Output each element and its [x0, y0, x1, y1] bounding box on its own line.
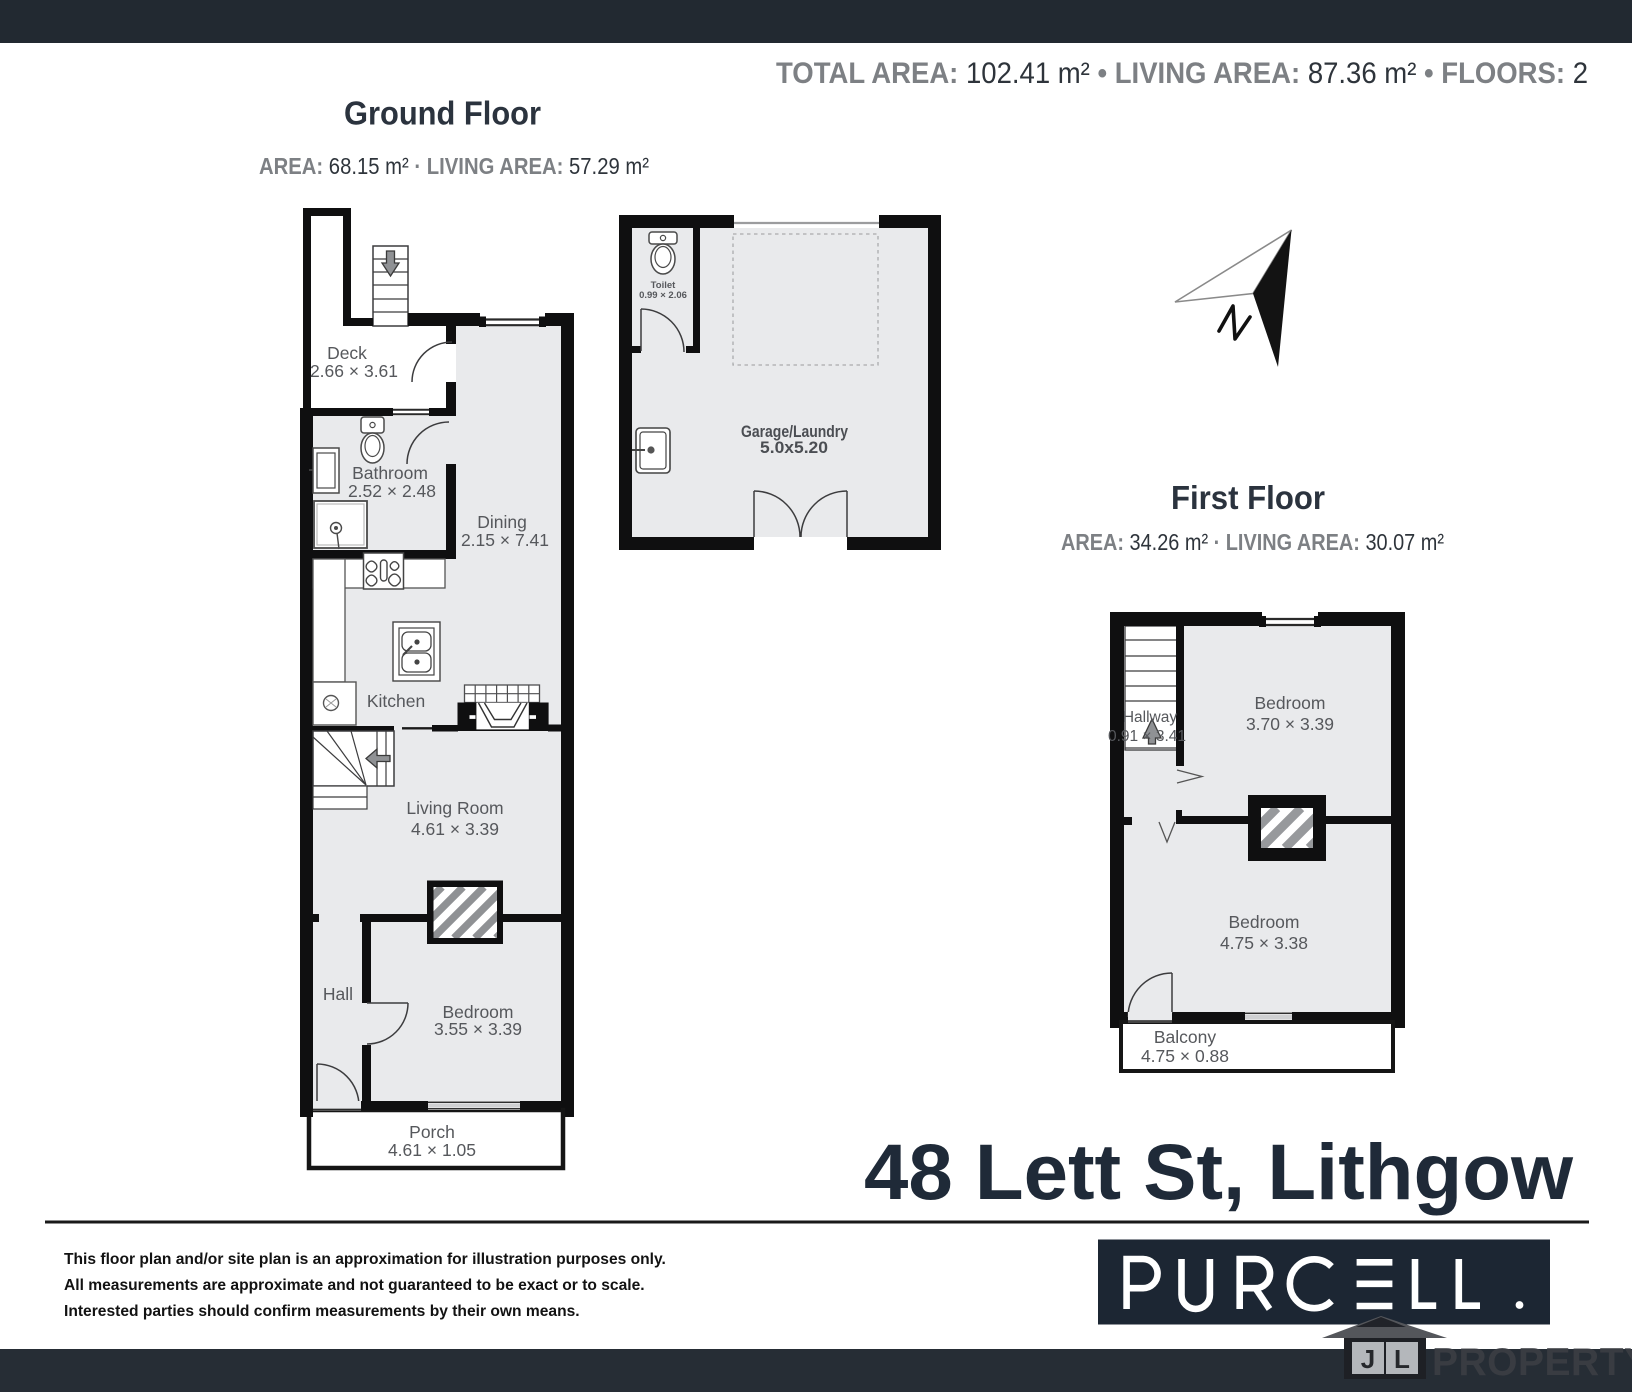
svg-text:Bathroom: Bathroom [352, 463, 428, 483]
svg-text:Bedroom: Bedroom [1254, 693, 1325, 713]
svg-text:First Floor: First Floor [1171, 479, 1325, 516]
svg-text:4.61 × 1.05: 4.61 × 1.05 [388, 1140, 476, 1160]
svg-text:Balcony: Balcony [1154, 1027, 1217, 1047]
svg-text:0.91 × 3.41: 0.91 × 3.41 [1108, 728, 1186, 745]
svg-text:4.61 × 3.39: 4.61 × 3.39 [411, 819, 499, 839]
svg-text:3.70 × 3.39: 3.70 × 3.39 [1246, 714, 1334, 734]
svg-text:This floor plan and/or site pl: This floor plan and/or site plan is an a… [64, 1251, 666, 1268]
svg-text:Living Room: Living Room [406, 798, 503, 818]
svg-text:PROPERTY: PROPERTY [1432, 1341, 1632, 1384]
svg-text:Interested parties should conf: Interested parties should confirm measur… [64, 1303, 580, 1320]
svg-text:AREA: 34.26 m² · LIVING AREA:: AREA: 34.26 m² · LIVING AREA: 30.07 m² [1061, 529, 1444, 555]
svg-text:Kitchen: Kitchen [367, 691, 425, 711]
svg-text:Bedroom: Bedroom [1228, 912, 1299, 932]
svg-text:Ground Floor: Ground Floor [344, 95, 541, 132]
svg-text:Hall: Hall [323, 984, 353, 1004]
svg-text:2.66 × 3.61: 2.66 × 3.61 [310, 361, 398, 381]
svg-text:Deck: Deck [327, 343, 367, 363]
svg-text:4.75 × 3.38: 4.75 × 3.38 [1220, 933, 1308, 953]
svg-text:TOTAL AREA: 102.41 m² • LIVING: TOTAL AREA: 102.41 m² • LIVING AREA: 87.… [776, 57, 1588, 90]
svg-text:5.0x5.20: 5.0x5.20 [760, 438, 828, 457]
svg-text:0.99 × 2.06: 0.99 × 2.06 [639, 290, 687, 301]
svg-text:Dining: Dining [477, 512, 527, 532]
svg-text:AREA: 68.15 m² · LIVING AREA:: AREA: 68.15 m² · LIVING AREA: 57.29 m² [259, 153, 649, 179]
svg-text:L: L [1394, 1344, 1410, 1374]
svg-text:2.15 × 7.41: 2.15 × 7.41 [461, 530, 549, 550]
svg-text:J: J [1361, 1344, 1375, 1374]
svg-text:Hallway: Hallway [1123, 709, 1178, 726]
svg-text:2.52 × 2.48: 2.52 × 2.48 [348, 481, 436, 501]
svg-text:48 Lett St, Lithgow: 48 Lett St, Lithgow [864, 1127, 1574, 1216]
svg-text:All measurements are approxima: All measurements are approximate and not… [64, 1277, 645, 1294]
svg-text:Porch: Porch [409, 1122, 455, 1142]
svg-text:3.55 × 3.39: 3.55 × 3.39 [434, 1019, 522, 1039]
svg-text:4.75 × 0.88: 4.75 × 0.88 [1141, 1046, 1229, 1066]
